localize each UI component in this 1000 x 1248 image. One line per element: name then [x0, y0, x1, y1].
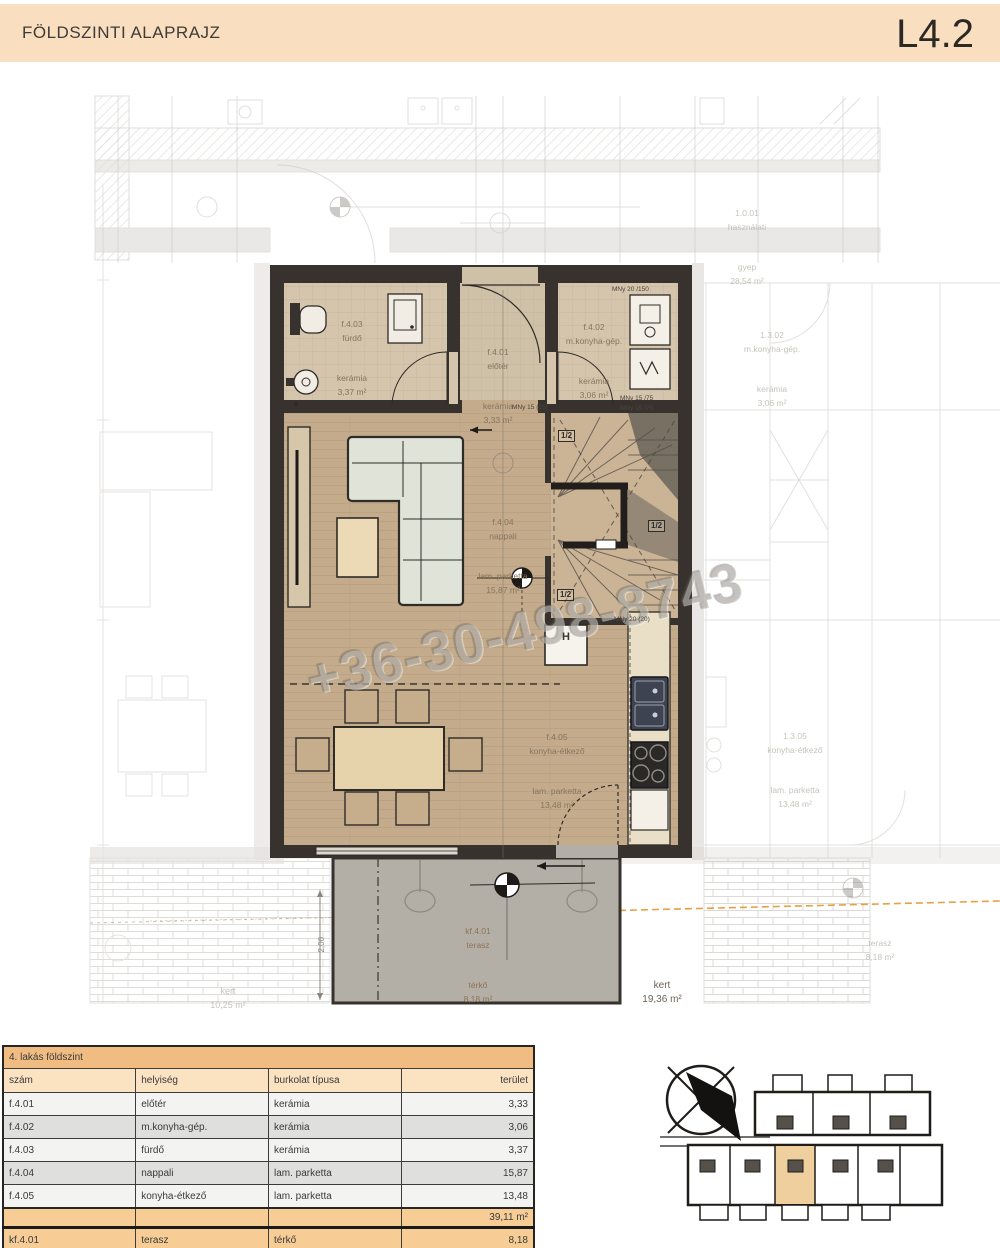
table-header-row: szám helyiség burkolat típusa terület — [3, 1069, 534, 1093]
garden-right-label: kert19,36 m² — [642, 952, 681, 1020]
mny-label: MNy 15 /75 — [620, 405, 653, 413]
north-arrow-icon — [667, 1066, 741, 1141]
cell-area: 3,06 — [401, 1116, 534, 1139]
context-label-top: 1.0.01használati gyep28,54 m² — [728, 180, 766, 302]
table-row: f.4.05 konyha-étkező lam. parketta 13,48 — [3, 1185, 534, 1209]
table-row: f.4.04 nappali lam. parketta 15,87 — [3, 1162, 534, 1185]
context-label-right-top: 1.3.02m.konyha-gép. kerámia3,06 m² — [744, 302, 800, 424]
table-title: 4. lakás földszint — [3, 1046, 534, 1069]
cell-num: f.4.04 — [3, 1162, 136, 1185]
cell-area: 8,18 — [401, 1228, 534, 1248]
cell-floor: kerámia — [269, 1139, 402, 1162]
context-label-right-terrace: terasz8,18 m² — [866, 910, 895, 978]
mny-label: MNy 20 /150 — [612, 286, 649, 294]
cell-floor: kerámia — [269, 1116, 402, 1139]
cell-num: f.4.03 — [3, 1139, 136, 1162]
cell-room: előtér — [136, 1093, 269, 1116]
col-header-helyiseg: helyiség — [136, 1069, 269, 1093]
survey-mark-faint-right — [843, 878, 863, 898]
garden-left-label: kert10,25 m² — [210, 958, 246, 1026]
table-row: f.4.01 előtér kerámia 3,33 — [3, 1093, 534, 1116]
cell-num: f.4.01 — [3, 1093, 136, 1116]
cell-room: terasz — [136, 1228, 269, 1248]
room-label-furdo: f.4.03fürdő kerámia3,37 m² — [337, 291, 367, 413]
cell-num: f.4.05 — [3, 1185, 136, 1209]
cell-room: konyha-étkező — [136, 1185, 269, 1209]
cell-area: 13,48 — [401, 1185, 534, 1209]
mny-label: MNy 20 (20) — [614, 616, 650, 624]
stair-half-label: 1/2 — [648, 520, 665, 532]
survey-mark-faint-top — [330, 197, 350, 217]
cell-area: 3,33 — [401, 1093, 534, 1116]
mny-label: MNy 15 (15) — [512, 404, 548, 412]
cell-area: 15,87 — [401, 1162, 534, 1185]
room-table: 4. lakás földszint szám helyiség burkola… — [2, 1045, 535, 1248]
room-label-eloter: f.4.01előtér kerámia3,33 m² — [483, 319, 513, 441]
dining-table — [334, 727, 444, 790]
utility-appliances — [630, 295, 670, 389]
kitchen-sink — [631, 677, 668, 730]
closet-h-label: H — [562, 631, 570, 645]
table-terrace-row: kf.4.01 terasz térkő 8,18 — [3, 1228, 534, 1248]
washbasin — [294, 370, 318, 394]
table-row: f.4.02 m.konyha-gép. kerámia 3,06 — [3, 1116, 534, 1139]
shower-cabin — [388, 294, 422, 343]
dimension-label: 2,00 — [315, 937, 329, 953]
col-header-burkolat: burkolat típusa — [269, 1069, 402, 1093]
table-total-row: 39,11 m² — [3, 1208, 534, 1228]
unit-code: L4.2 — [896, 12, 974, 57]
stair-half-label: 1/2 — [557, 589, 574, 601]
cell-room: m.konyha-gép. — [136, 1116, 269, 1139]
cell-room: fürdő — [136, 1139, 269, 1162]
floor-plan-sheet: FÖLDSZINTI ALAPRAJZ L4.2 +36-30-498-8743… — [0, 0, 1000, 1248]
room-label-terasz: kf.4.01terasz térkő8,18 m² — [464, 898, 493, 1020]
context-label-right-mid: 1.3.05konyha-étkező lam. parketta13,48 m… — [767, 703, 822, 825]
cell-num: kf.4.01 — [3, 1228, 136, 1248]
keyplan-unit-highlight — [775, 1146, 815, 1204]
cell-room: nappali — [136, 1162, 269, 1185]
cell-num: f.4.02 — [3, 1116, 136, 1139]
total-area: 39,11 m² — [401, 1208, 534, 1228]
tv-cabinet — [288, 427, 310, 607]
cell-area: 3,37 — [401, 1139, 534, 1162]
toilet — [300, 306, 326, 333]
room-label-nappali: f.4.04nappali lam. parketta15,87 m² — [478, 489, 527, 611]
table-row: f.4.03 fürdő kerámia 3,37 — [3, 1139, 534, 1162]
stair-half-label: 1/2 — [558, 430, 575, 442]
cell-floor: térkő — [269, 1228, 402, 1248]
col-header-terulet: terület — [401, 1069, 534, 1093]
table-title-row: 4. lakás földszint — [3, 1046, 534, 1069]
room-label-mkonyha: f.4.02m.konyha-gép. kerámia3,06 m² — [566, 294, 622, 416]
cell-floor: lam. parketta — [269, 1185, 402, 1209]
mny-label: MNy 15 /75 — [620, 395, 653, 403]
room-label-konyha: f.4.05konyha-étkező lam. parketta13,48 m… — [529, 704, 584, 826]
cell-floor: kerámia — [269, 1093, 402, 1116]
page-title: FÖLDSZINTI ALAPRAJZ — [22, 23, 220, 43]
coffee-table — [337, 518, 378, 577]
title-bar: FÖLDSZINTI ALAPRAJZ L4.2 — [0, 4, 1000, 62]
col-header-szam: szám — [3, 1069, 136, 1093]
cell-floor: lam. parketta — [269, 1162, 402, 1185]
